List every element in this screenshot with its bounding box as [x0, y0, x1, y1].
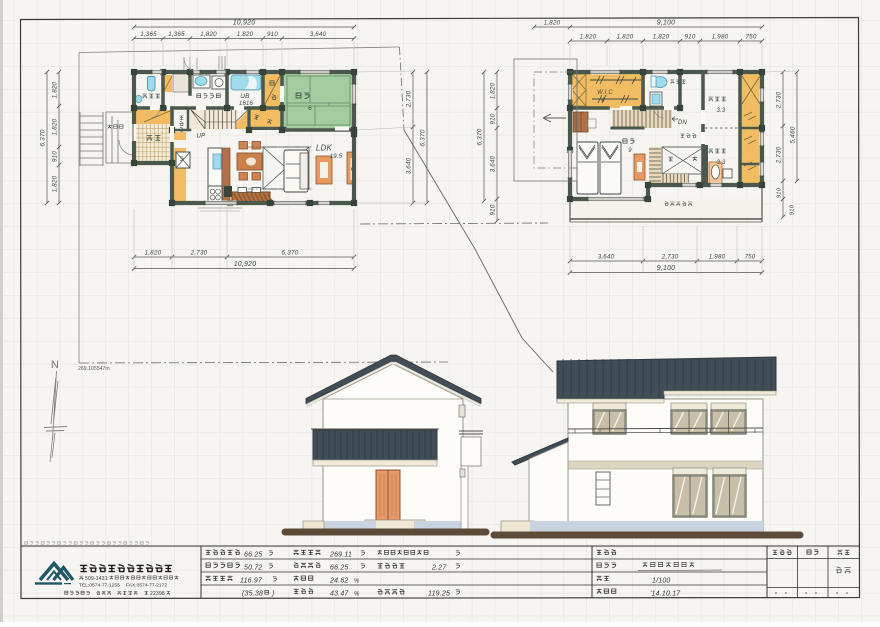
- svg-text:%: %: [354, 592, 360, 598]
- svg-text:269.11: 269.11: [329, 552, 352, 559]
- svg-text:910: 910: [490, 113, 497, 124]
- svg-text:1,820: 1,820: [52, 118, 59, 135]
- svg-text:10,920: 10,920: [234, 261, 257, 268]
- svg-text:6: 6: [308, 105, 312, 112]
- svg-text:2,730: 2,730: [776, 146, 783, 164]
- svg-text:2.27: 2.27: [431, 565, 447, 572]
- svg-text:1,365: 1,365: [168, 31, 185, 38]
- svg-text:750: 750: [746, 34, 757, 41]
- svg-text:1,820: 1,820: [490, 82, 497, 99]
- svg-text:2,730: 2,730: [190, 250, 208, 257]
- svg-text:(35.38: (35.38: [242, 591, 263, 598]
- svg-text:10,920: 10,920: [233, 20, 256, 27]
- svg-text:FAX:0574-77-2172: FAX:0574-77-2172: [126, 582, 167, 588]
- svg-text:910: 910: [52, 151, 59, 162]
- svg-text:1,820: 1,820: [653, 34, 670, 41]
- svg-text:66.25: 66.25: [330, 565, 349, 572]
- svg-text:1,980: 1,980: [712, 34, 729, 41]
- svg-text:910: 910: [790, 204, 796, 215]
- svg-text:6,370: 6,370: [420, 129, 427, 146]
- svg-text:1,820: 1,820: [580, 34, 597, 41]
- svg-text:3,640: 3,640: [310, 31, 327, 38]
- svg-text:3,640: 3,640: [490, 155, 497, 172]
- svg-text:2,730: 2,730: [406, 90, 413, 108]
- svg-text:750: 750: [745, 255, 756, 261]
- svg-text:3.3: 3.3: [717, 108, 726, 114]
- svg-text:50.72: 50.72: [244, 565, 263, 572]
- svg-text:TEL:0574-77-1255: TEL:0574-77-1255: [79, 582, 120, 588]
- svg-text:UP: UP: [197, 134, 206, 140]
- svg-text:19.5: 19.5: [330, 154, 343, 160]
- svg-text:1/100: 1/100: [652, 578, 671, 585]
- svg-text:W.I.C: W.I.C: [597, 90, 613, 96]
- svg-text:910: 910: [685, 34, 696, 41]
- svg-text:22398: 22398: [150, 591, 165, 597]
- svg-text:1,820: 1,820: [145, 250, 162, 257]
- svg-text:LDK: LDK: [316, 144, 333, 153]
- svg-text:3,640: 3,640: [406, 157, 413, 174]
- svg-text:%: %: [354, 579, 360, 585]
- svg-text:43.47: 43.47: [330, 591, 349, 598]
- svg-text:119.25: 119.25: [428, 591, 450, 598]
- svg-text:24.62: 24.62: [329, 578, 349, 585]
- svg-text:UB: UB: [240, 93, 250, 100]
- svg-text:6,370: 6,370: [281, 250, 298, 257]
- svg-text:9: 9: [628, 148, 632, 154]
- svg-text:1,820: 1,820: [52, 175, 59, 192]
- svg-text:6,370: 6,370: [40, 129, 47, 146]
- svg-text:910: 910: [490, 204, 497, 215]
- svg-text:269.105547m: 269.105547m: [78, 366, 110, 372]
- svg-text:9,100: 9,100: [657, 20, 676, 27]
- svg-text:6,370: 6,370: [477, 128, 484, 145]
- svg-text:'14.10.17: '14.10.17: [650, 591, 681, 598]
- svg-text:1,820: 1,820: [544, 20, 561, 27]
- svg-text:509-1431: 509-1431: [85, 576, 108, 582]
- svg-text:910: 910: [777, 187, 783, 198]
- svg-text:9,100: 9,100: [657, 265, 676, 272]
- svg-text:1,820: 1,820: [617, 34, 634, 41]
- svg-text:1,980: 1,980: [709, 254, 726, 261]
- svg-text:): ): [271, 591, 275, 598]
- svg-text:5,460: 5,460: [790, 126, 797, 143]
- svg-text:1,820: 1,820: [52, 81, 59, 98]
- svg-text:116.97: 116.97: [240, 578, 263, 585]
- svg-text:4: 4: [601, 98, 605, 104]
- svg-text:1,820: 1,820: [237, 31, 254, 38]
- svg-text:910: 910: [267, 31, 278, 38]
- svg-text:1,365: 1,365: [140, 31, 157, 38]
- svg-text:2,730: 2,730: [661, 254, 679, 261]
- svg-text:3,640: 3,640: [598, 254, 615, 261]
- svg-text:N: N: [51, 359, 59, 371]
- svg-text:DN: DN: [678, 120, 688, 126]
- svg-text:2,730: 2,730: [776, 91, 783, 109]
- svg-text:66.25: 66.25: [244, 552, 263, 559]
- svg-text:1,820: 1,820: [200, 31, 217, 38]
- svg-text:3.3: 3.3: [717, 160, 726, 166]
